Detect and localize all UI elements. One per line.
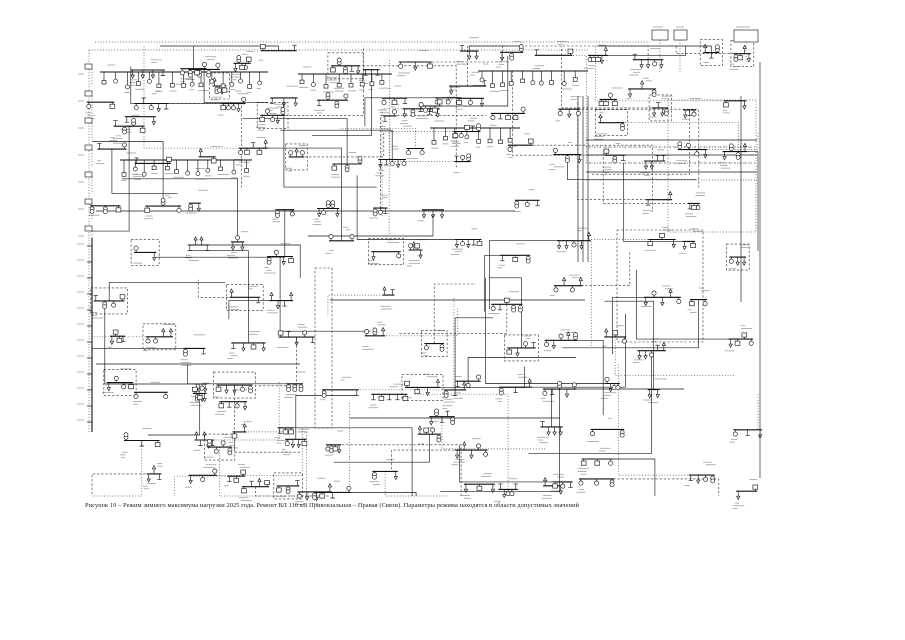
scheme-symbols-rects — [85, 30, 758, 498]
figure-caption: Рисунок 19 – Режим зимнего максимума наг… — [85, 502, 579, 510]
power-grid-schematic — [0, 0, 905, 640]
scheme-layer-gray — [77, 27, 757, 509]
document-page: Рисунок 19 – Режим зимнего максимума наг… — [0, 0, 905, 640]
scheme-layer-bus — [87, 51, 762, 493]
